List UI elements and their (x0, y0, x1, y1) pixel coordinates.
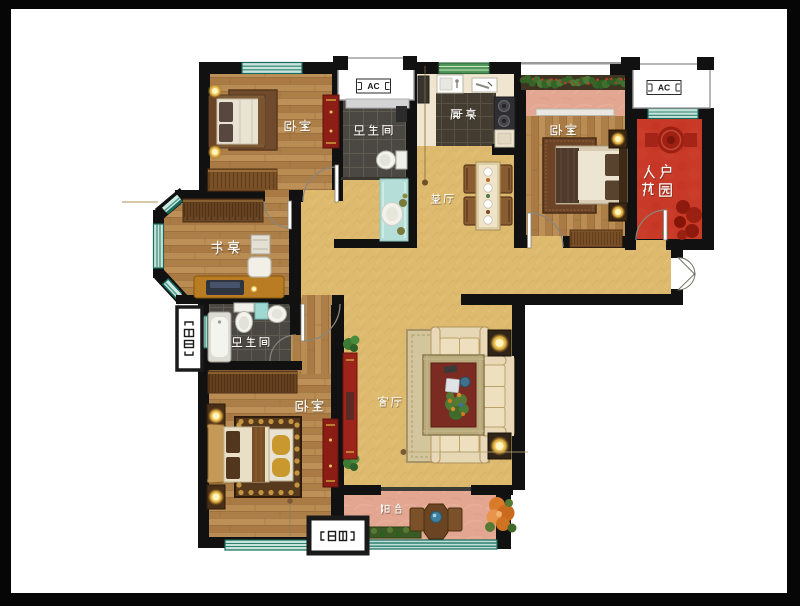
svg-text:AC: AC (658, 83, 670, 93)
svg-text:AC: AC (367, 81, 379, 91)
